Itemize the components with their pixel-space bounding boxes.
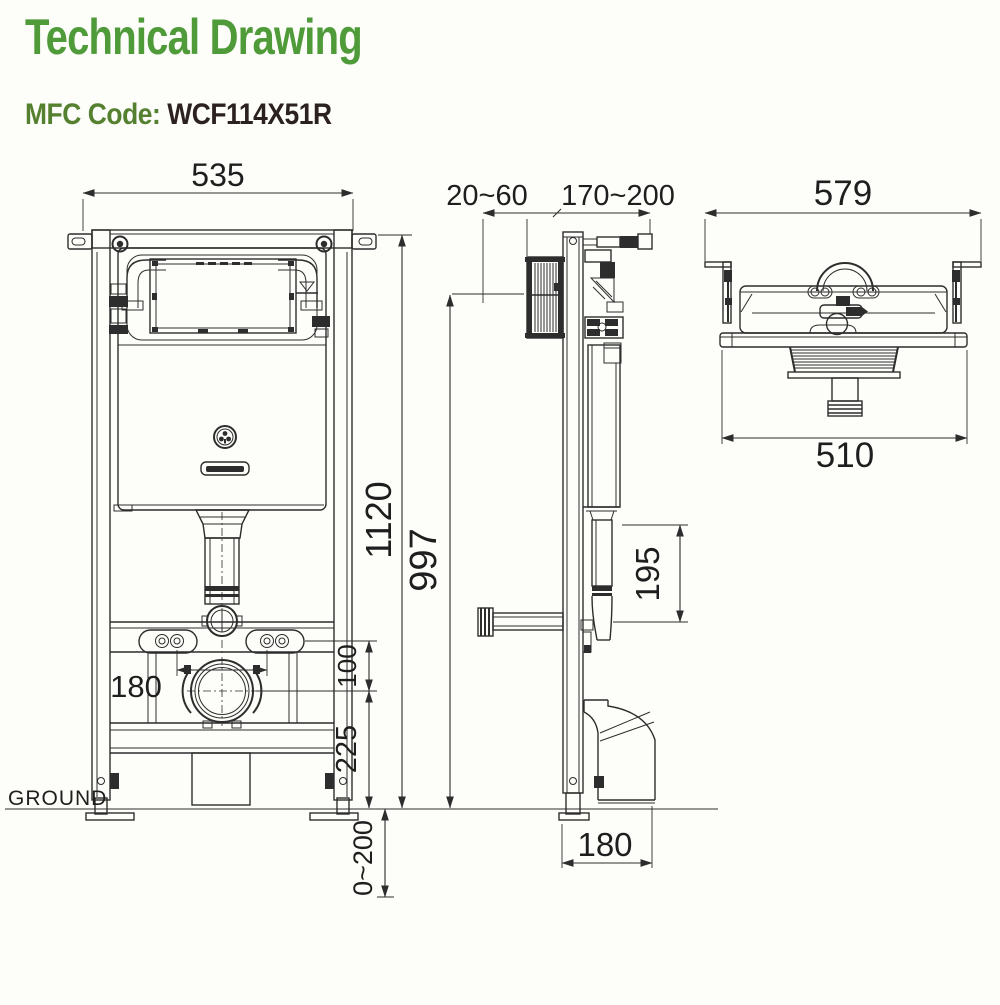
water-inlet-rod [583,234,652,249]
flush-pipe-flange [202,606,242,636]
dim-bracket-width-label: 579 [814,174,872,213]
pipe-clamp-assembly [585,317,623,338]
flush-bend-side [581,520,612,653]
top-center-fittings [810,296,868,335]
ground-label: GROUND [8,787,107,810]
cistern-side-profile [583,343,621,520]
dim-install-depth-label: 170~200 [561,180,675,212]
fill-valve-profile [585,250,623,312]
wall-bracket-right [352,234,376,249]
internal-pipe-elbow-right [278,260,322,310]
drawing-header: Technical Drawing MFC Code: WCF114X51R [25,10,446,65]
internal-pipe-elbow-left [122,260,166,310]
dim-bolt-spacing-label: 180 [110,669,162,704]
waste-outlet [183,657,262,728]
water-level-icon [296,282,318,293]
cistern-top-body [740,286,947,333]
flush-plate-conduit [525,257,565,338]
mfc-code: WCF114X51R [167,98,331,131]
top-bracket-right [952,262,981,323]
top-outlet-pipe [828,378,862,416]
top-base-plate [720,333,967,347]
flush-pipe-front [196,510,249,655]
page-title: Technical Drawing [25,10,362,65]
dim-body-width-label: 510 [816,436,874,475]
dim-bend-height-label: 195 [629,546,666,601]
dim-front-width-label: 535 [191,157,244,193]
dim-flush-panel-height-label: 997 [403,528,445,591]
mfc-label: MFC Code: [25,98,160,131]
top-bracket-left [705,262,732,323]
frame-top-bar [92,230,352,248]
dim-outlet-depth: 180 [562,806,652,868]
flush-plate-access-panel [150,259,296,333]
fitting-right [312,316,330,337]
waste-connector-elbow [584,700,655,803]
dim-bolt-to-outlet-label: 100 [332,644,362,687]
carry-handle [808,263,879,298]
frame-left-rail [92,230,110,800]
dim-outlet-height-label: 225 [331,725,363,773]
side-frame-post [563,232,583,793]
drain-template-box [192,753,250,805]
dim-flush-panel-height: 997 [403,294,524,808]
dim-bracket-width: 579 [705,174,981,261]
dim-bolt-to-outlet: 100 [256,641,377,691]
dim-front-width: 535 [83,157,353,231]
dim-front-height-label: 1120 [358,481,399,558]
fixing-plate-right [246,630,304,653]
top-view: 579 510 [705,174,981,475]
dim-leg-adjust: 0~200 [348,809,394,897]
technical-drawing-canvas: 535 1120 180 100 225 0~200 G [0,0,1000,1000]
dim-outlet-height: 225 [331,691,369,808]
dim-bolt-spacing: 180 [110,650,267,704]
dim-wall-clearance-label: 20~60 [446,180,527,212]
fixing-plate-left [139,630,197,653]
dim-front-height: 1120 [358,235,412,808]
frame-right-rail [334,230,352,800]
recycle-icon [214,426,236,448]
brand-label [201,462,249,475]
dim-leg-adjust-label: 0~200 [348,820,378,896]
mfc-code-line: MFC Code: WCF114X51R [25,98,332,132]
water-supply-pipe [478,608,563,636]
dim-outlet-depth-label: 180 [577,826,632,863]
side-view: 20~60 170~200 997 195 180 [403,180,688,868]
wall-bracket-left [68,234,92,249]
top-bellows [788,347,900,378]
dim-bend-height: 195 [613,525,688,622]
